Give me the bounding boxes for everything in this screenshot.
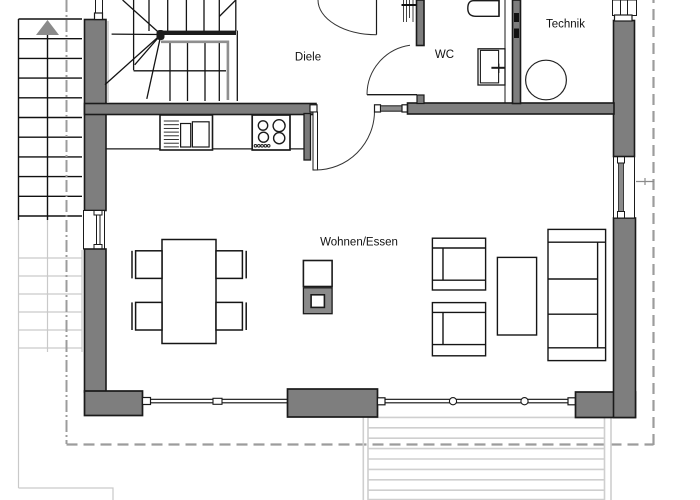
svg-text:Diele: Diele [295, 52, 321, 64]
svg-text:Wohnen/Essen: Wohnen/Essen [320, 237, 398, 249]
svg-text:Technik: Technik [546, 19, 585, 31]
svg-text:WC: WC [435, 49, 454, 61]
